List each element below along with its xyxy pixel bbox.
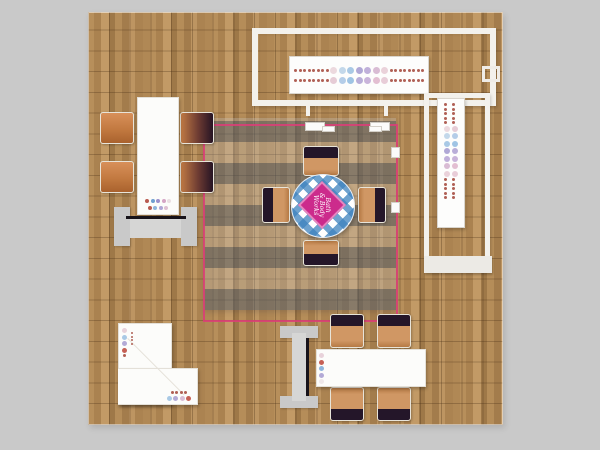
booth-floor-plan: Bath & Body Works <box>0 0 600 450</box>
chair <box>303 240 339 266</box>
banner-dot-row <box>290 67 428 74</box>
chair <box>100 161 134 193</box>
header-banner-graphic <box>289 56 429 94</box>
counter-dot-graphic <box>122 328 127 357</box>
counter-dot-graphic <box>131 332 133 345</box>
chair <box>330 387 364 421</box>
chair <box>303 146 339 176</box>
counter-dot-graphic <box>164 396 194 401</box>
chair <box>100 112 134 144</box>
table-dot-graphic <box>144 206 172 210</box>
chair <box>377 387 411 421</box>
chair <box>180 112 214 144</box>
sign-frame-right-base <box>424 256 492 273</box>
table-dot-graphic <box>319 353 324 384</box>
monitor-stand-flange <box>181 207 197 246</box>
chair <box>377 314 411 348</box>
counter-dot-graphic <box>166 391 192 394</box>
chair <box>262 187 290 223</box>
outline-marker <box>391 147 400 158</box>
chair <box>330 314 364 348</box>
conference-table-left <box>137 97 179 215</box>
outline-marker <box>322 126 335 132</box>
monitor-screen-edge <box>126 216 186 219</box>
conference-table-bottom <box>316 349 426 387</box>
vertical-banner-graphic <box>437 98 465 228</box>
monitor-stand-web <box>130 218 181 238</box>
chair <box>358 187 386 223</box>
frame-connector <box>482 66 500 82</box>
chair <box>180 161 214 193</box>
monitor-screen-edge <box>306 338 309 396</box>
monitor-stand-flange <box>114 207 130 246</box>
frame-support-post <box>384 100 388 116</box>
monitor-stand-web <box>292 333 306 401</box>
outline-marker <box>391 202 400 213</box>
brand-logo-text: Bath & Body Works <box>313 193 331 217</box>
table-dot-graphic <box>142 199 174 203</box>
frame-support-post <box>306 100 310 116</box>
banner-dot-row <box>290 77 428 84</box>
outline-marker <box>369 126 382 132</box>
